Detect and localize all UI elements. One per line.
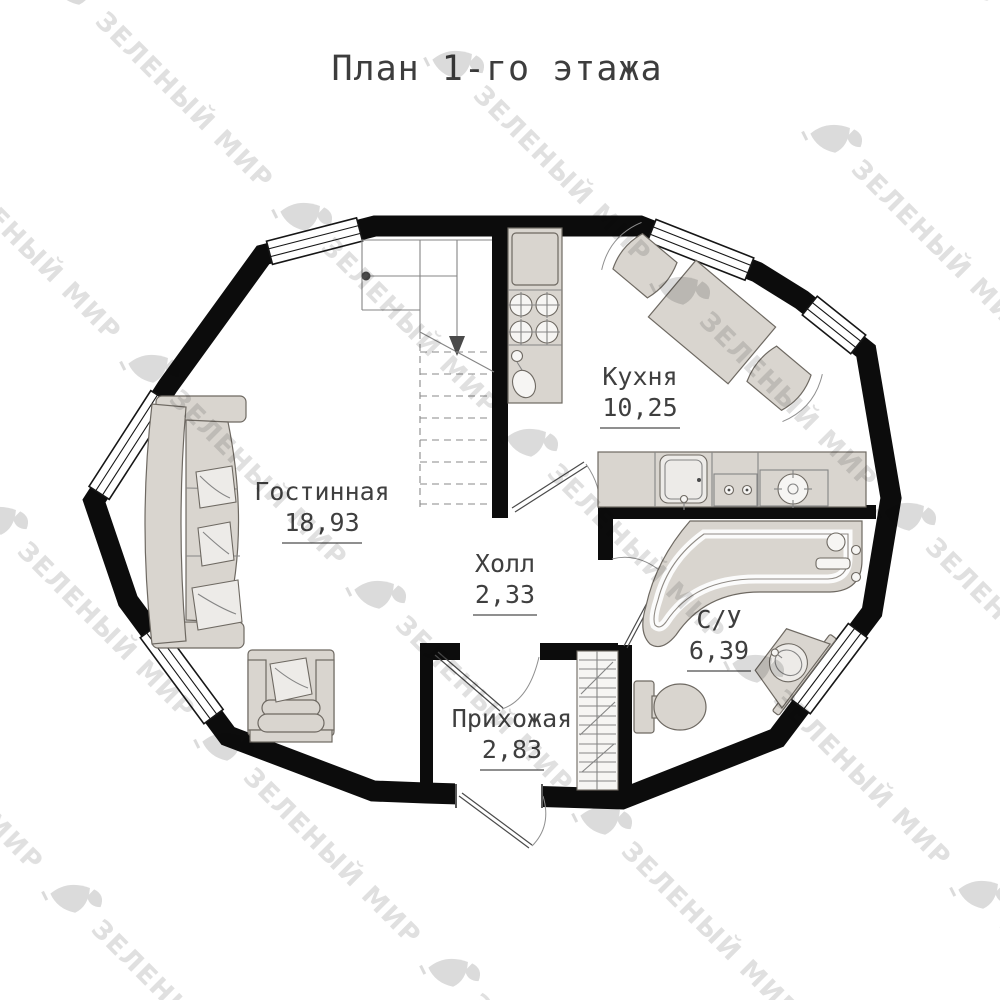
counter-sink-icon xyxy=(660,455,707,510)
entrance-door xyxy=(455,783,546,848)
svg-text:10,25: 10,25 xyxy=(602,393,677,422)
kitchen-appliance-strip xyxy=(508,228,562,403)
bath-faucet-icon xyxy=(816,558,850,569)
toilet-icon xyxy=(634,681,706,733)
pillow-icon xyxy=(270,658,312,702)
floor-plan-canvas: ЗЕЛЕНЫЙ МИР План 1-го этажа xyxy=(0,0,1000,1000)
room-label-hall: Холл 2,33 xyxy=(473,549,537,615)
interior-wall-bath-west xyxy=(617,645,632,795)
fridge-icon xyxy=(512,233,558,285)
armchair-icon xyxy=(248,650,334,742)
interior-wall-stairs xyxy=(492,226,508,518)
svg-text:Кухня: Кухня xyxy=(602,362,677,391)
wardrobe-icon xyxy=(577,651,618,790)
kitchen-counter xyxy=(598,452,866,510)
page-title: План 1-го этажа xyxy=(331,49,662,89)
room-label-kitchen: Кухня 10,25 xyxy=(600,362,680,428)
svg-text:2,33: 2,33 xyxy=(475,580,535,609)
svg-text:Холл: Холл xyxy=(475,549,535,578)
